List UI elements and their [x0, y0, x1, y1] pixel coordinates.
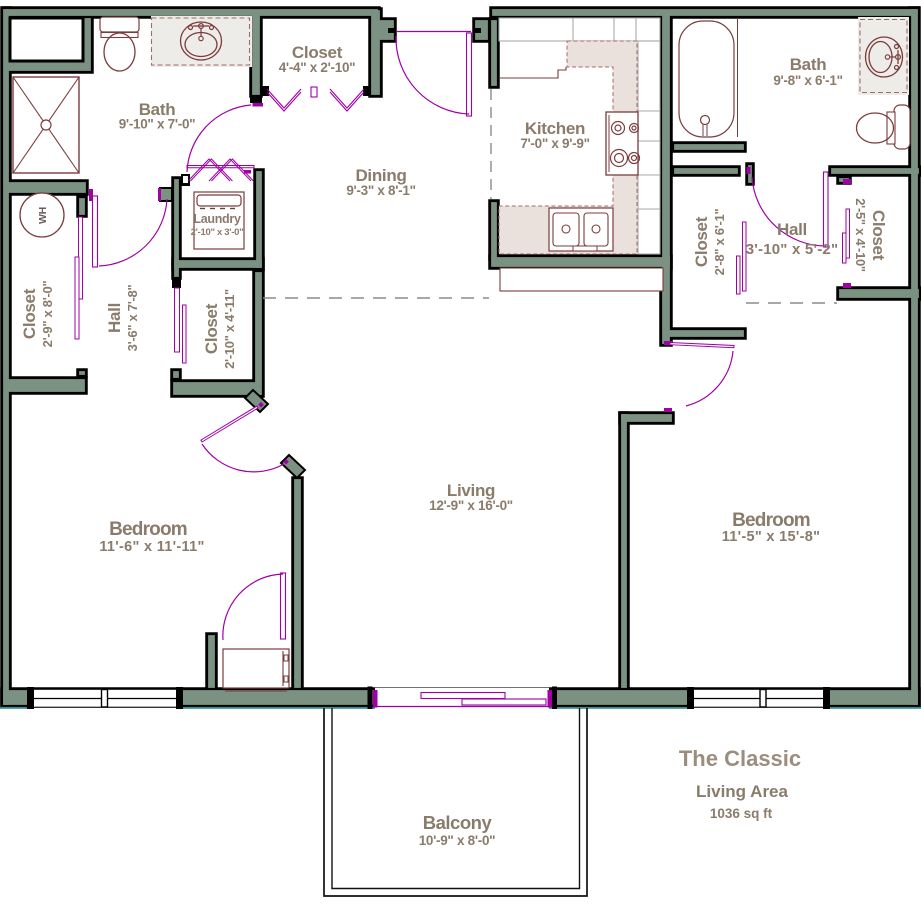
- svg-text:Hall: Hall: [105, 303, 124, 333]
- svg-text:2'-10" x 4'-11": 2'-10" x 4'-11": [222, 289, 237, 369]
- svg-text:9'-8" x 6'-1": 9'-8" x 6'-1": [773, 73, 842, 88]
- svg-text:11'-6" x 11'-11": 11'-6" x 11'-11": [99, 539, 204, 555]
- svg-text:Bedroom: Bedroom: [732, 510, 810, 531]
- svg-text:2'-10" x 3'-0": 2'-10" x 3'-0": [191, 227, 244, 238]
- svg-text:1036 sq ft: 1036 sq ft: [710, 806, 773, 821]
- svg-text:2'-5" x 4'-10": 2'-5" x 4'-10": [853, 198, 868, 272]
- svg-text:7'-0" x 9'-9": 7'-0" x 9'-9": [520, 136, 589, 151]
- svg-text:Bath: Bath: [790, 55, 827, 74]
- svg-text:Closet: Closet: [202, 303, 221, 354]
- svg-text:Laundry: Laundry: [193, 212, 241, 226]
- svg-text:Closet: Closet: [692, 216, 711, 267]
- svg-text:WH: WH: [37, 207, 49, 224]
- svg-text:Closet: Closet: [20, 288, 39, 339]
- svg-text:2'-9" x 8'-0": 2'-9" x 8'-0": [40, 281, 55, 348]
- svg-text:Living Area: Living Area: [696, 782, 788, 801]
- svg-text:11'-5" x 15'-8": 11'-5" x 15'-8": [722, 529, 821, 545]
- svg-text:3'-6" x 7'-8": 3'-6" x 7'-8": [125, 285, 140, 352]
- svg-text:2'-8" x 6'-1": 2'-8" x 6'-1": [712, 209, 727, 276]
- svg-text:Balcony: Balcony: [423, 812, 493, 833]
- svg-text:10'-9" x 8'-0": 10'-9" x 8'-0": [419, 833, 496, 848]
- svg-text:4'-4" x 2'-10": 4'-4" x 2'-10": [279, 60, 356, 75]
- svg-text:12'-9" x 16'-0": 12'-9" x 16'-0": [429, 498, 513, 513]
- svg-text:9'-3" x 8'-1": 9'-3" x 8'-1": [346, 183, 415, 198]
- svg-text:9'-10" x 7'-0": 9'-10" x 7'-0": [119, 117, 196, 132]
- svg-text:Closet: Closet: [869, 210, 888, 261]
- svg-text:Hall: Hall: [777, 220, 807, 239]
- svg-text:Bedroom: Bedroom: [109, 519, 187, 540]
- svg-text:The Classic: The Classic: [679, 746, 801, 771]
- svg-text:3'-10" x 5'-2": 3'-10" x 5'-2": [746, 241, 839, 258]
